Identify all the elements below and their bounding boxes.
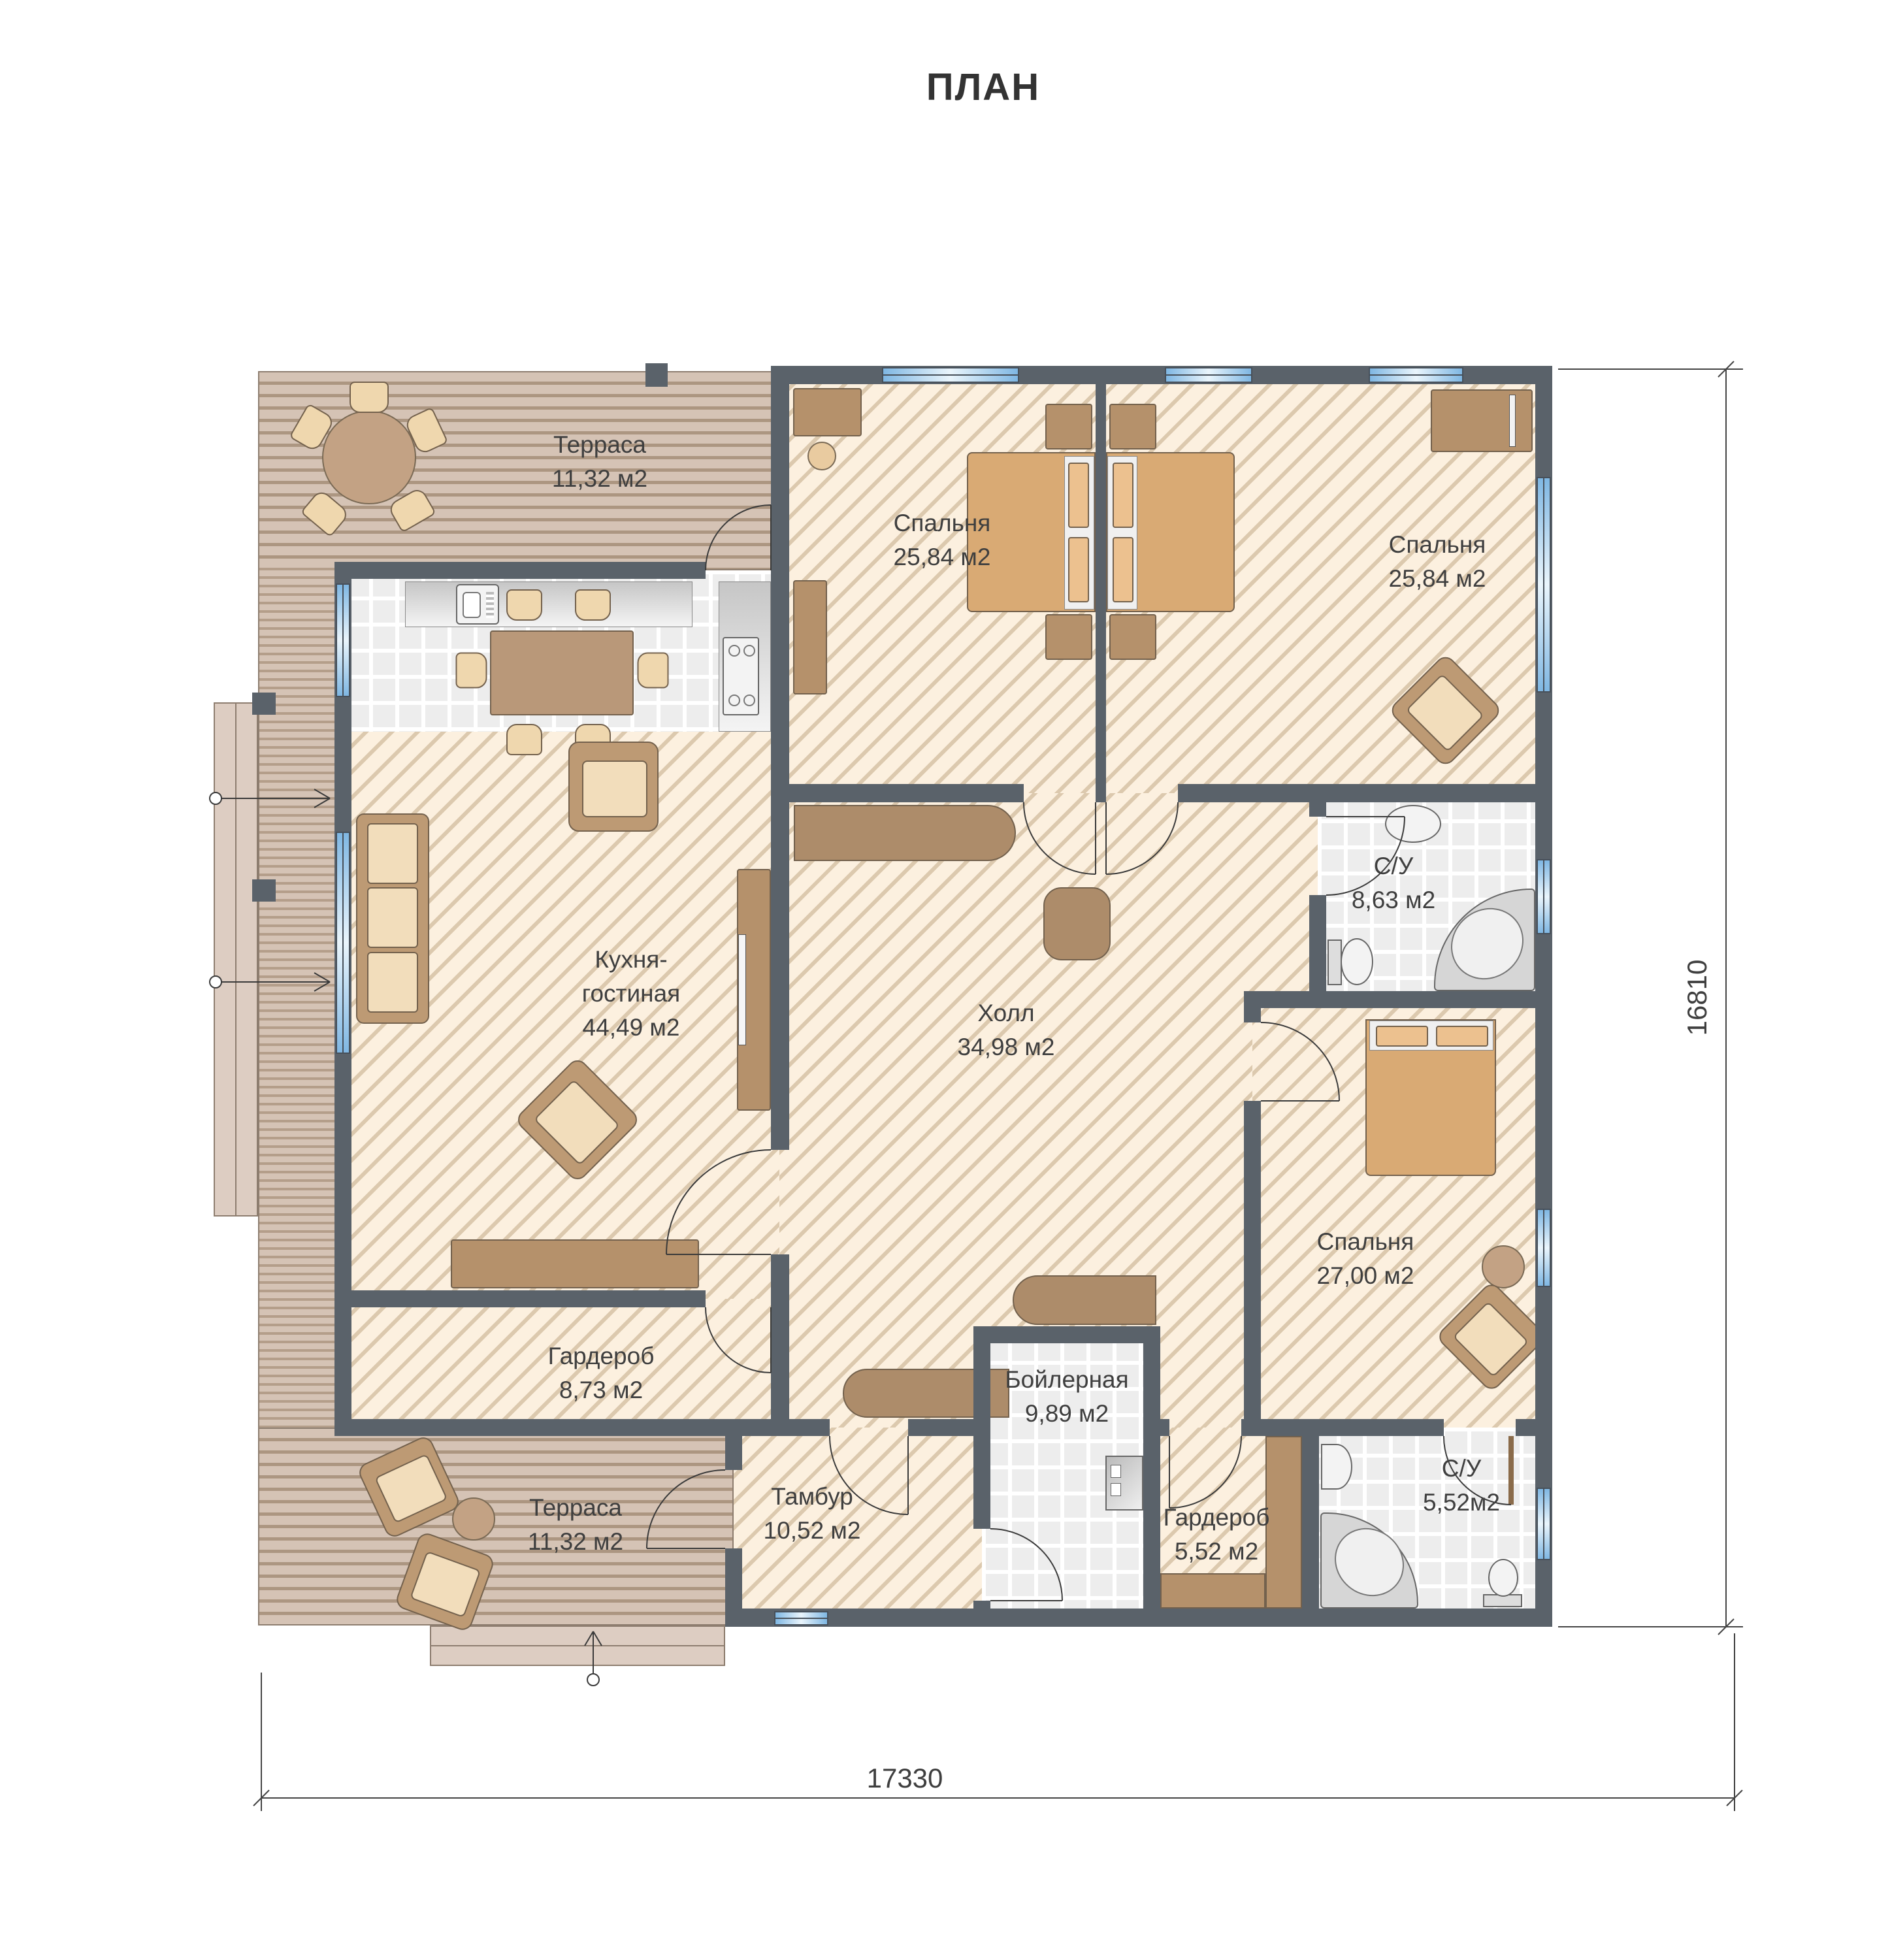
door-tambour-entry bbox=[647, 1470, 725, 1548]
door-terrace bbox=[706, 505, 771, 570]
room-label-kitchen-living: Кухня-гостиная44,49 м2 bbox=[582, 943, 680, 1045]
door-living-hall bbox=[666, 1150, 771, 1254]
room-label-bedroom-2: Спальня25,84 м2 bbox=[1389, 528, 1486, 596]
dimension-width: 17330 bbox=[867, 1763, 943, 1794]
door-boiler bbox=[990, 1529, 1062, 1601]
page-title: ПЛАН bbox=[926, 65, 1040, 109]
room-label-wardrobe-1: Гардероб8,73 м2 bbox=[548, 1339, 655, 1407]
room-label-terrace-bottom: Терраса11,32 м2 bbox=[528, 1491, 623, 1559]
room-label-hall: Холл34,98 м2 bbox=[958, 996, 1055, 1064]
door-bedroom-3 bbox=[1261, 1022, 1339, 1101]
door-bedroom-2 bbox=[1106, 802, 1178, 874]
dimension-height: 16810 bbox=[1682, 960, 1713, 1036]
floor-plan-canvas: ПЛАН bbox=[0, 0, 1890, 1960]
room-label-bedroom-3: Спальня27,00 м2 bbox=[1317, 1225, 1414, 1293]
room-label-terrace-top: Терраса11,32 м2 bbox=[552, 428, 647, 496]
room-label-bedroom-1: Спальня25,84 м2 bbox=[894, 506, 991, 574]
room-label-boiler: Бойлерная9,89 м2 bbox=[1005, 1363, 1128, 1431]
door-bedroom-1 bbox=[1024, 802, 1096, 874]
room-label-bathroom-2: С/У5,52м2 bbox=[1423, 1452, 1500, 1520]
room-label-tambour: Тамбур10,52 м2 bbox=[764, 1480, 861, 1548]
door-wardrobe-2 bbox=[1169, 1436, 1241, 1508]
door-wardrobe-1 bbox=[706, 1307, 771, 1373]
dimension-lines bbox=[253, 361, 1743, 1811]
room-label-bathroom-1: С/У8,63 м2 bbox=[1352, 849, 1435, 917]
room-label-wardrobe-2: Гардероб5,52 м2 bbox=[1164, 1501, 1270, 1569]
